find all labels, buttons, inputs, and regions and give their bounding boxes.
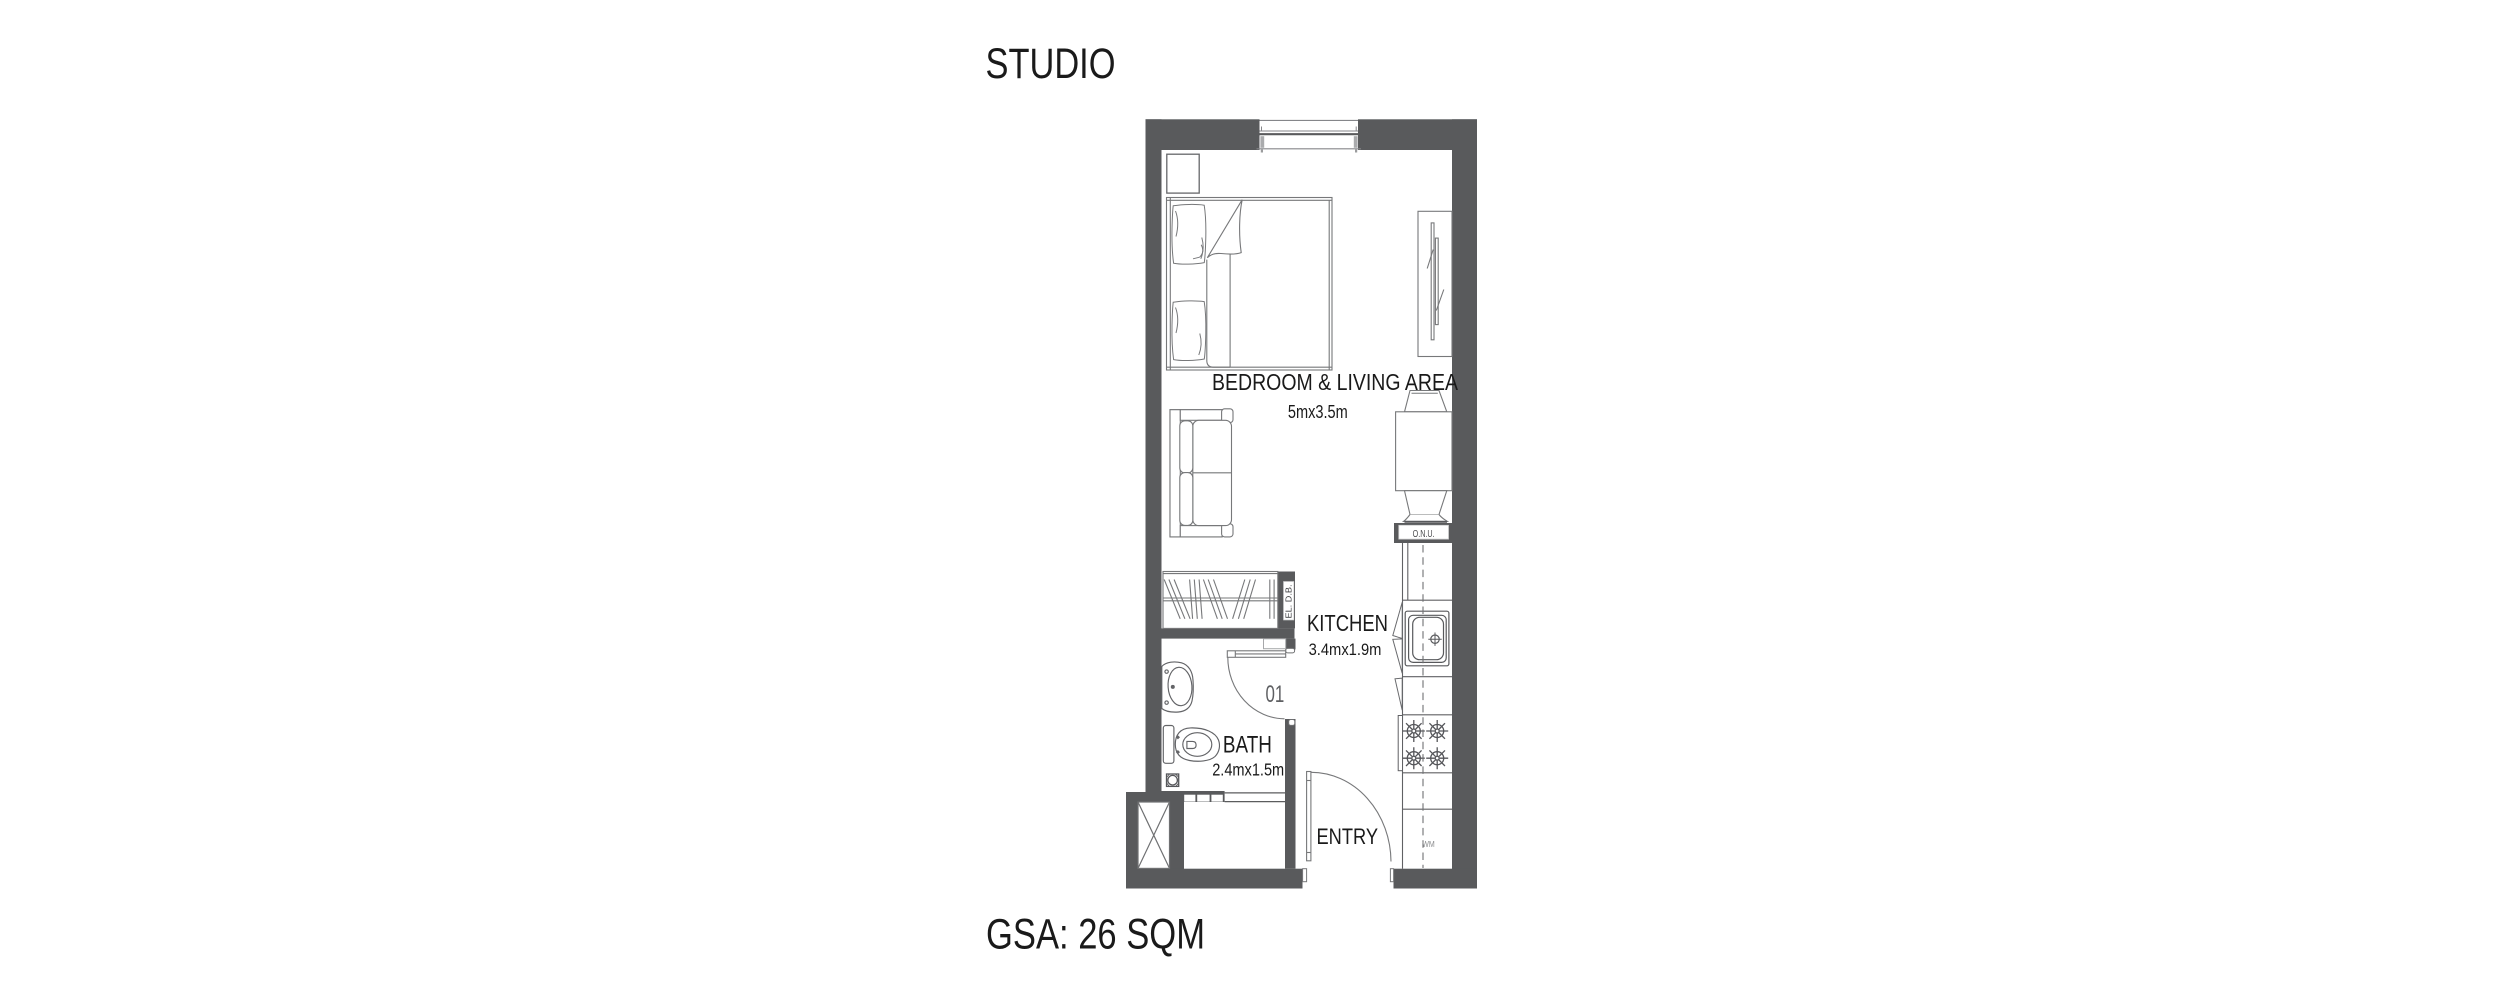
svg-text:BATH: BATH [1223, 731, 1272, 758]
svg-text:O.N.U.: O.N.U. [1413, 528, 1435, 540]
svg-text:2.4mx1.5m: 2.4mx1.5m [1212, 760, 1284, 780]
svg-text:01: 01 [1266, 681, 1285, 708]
svg-text:5mx3.5m: 5mx3.5m [1288, 401, 1348, 422]
svg-text:KITCHEN: KITCHEN [1307, 610, 1388, 636]
svg-text:STUDIO: STUDIO [986, 40, 1116, 88]
svg-text:EL. D.B.: EL. D.B. [1284, 585, 1293, 619]
svg-text:ENTRY: ENTRY [1317, 824, 1379, 849]
svg-text:GSA: 26 SQM: GSA: 26 SQM [986, 911, 1205, 959]
svg-text:WM: WM [1422, 840, 1435, 849]
svg-text:BEDROOM & LIVING AREA: BEDROOM & LIVING AREA [1212, 369, 1459, 395]
svg-text:3.4mx1.9m: 3.4mx1.9m [1309, 641, 1382, 659]
